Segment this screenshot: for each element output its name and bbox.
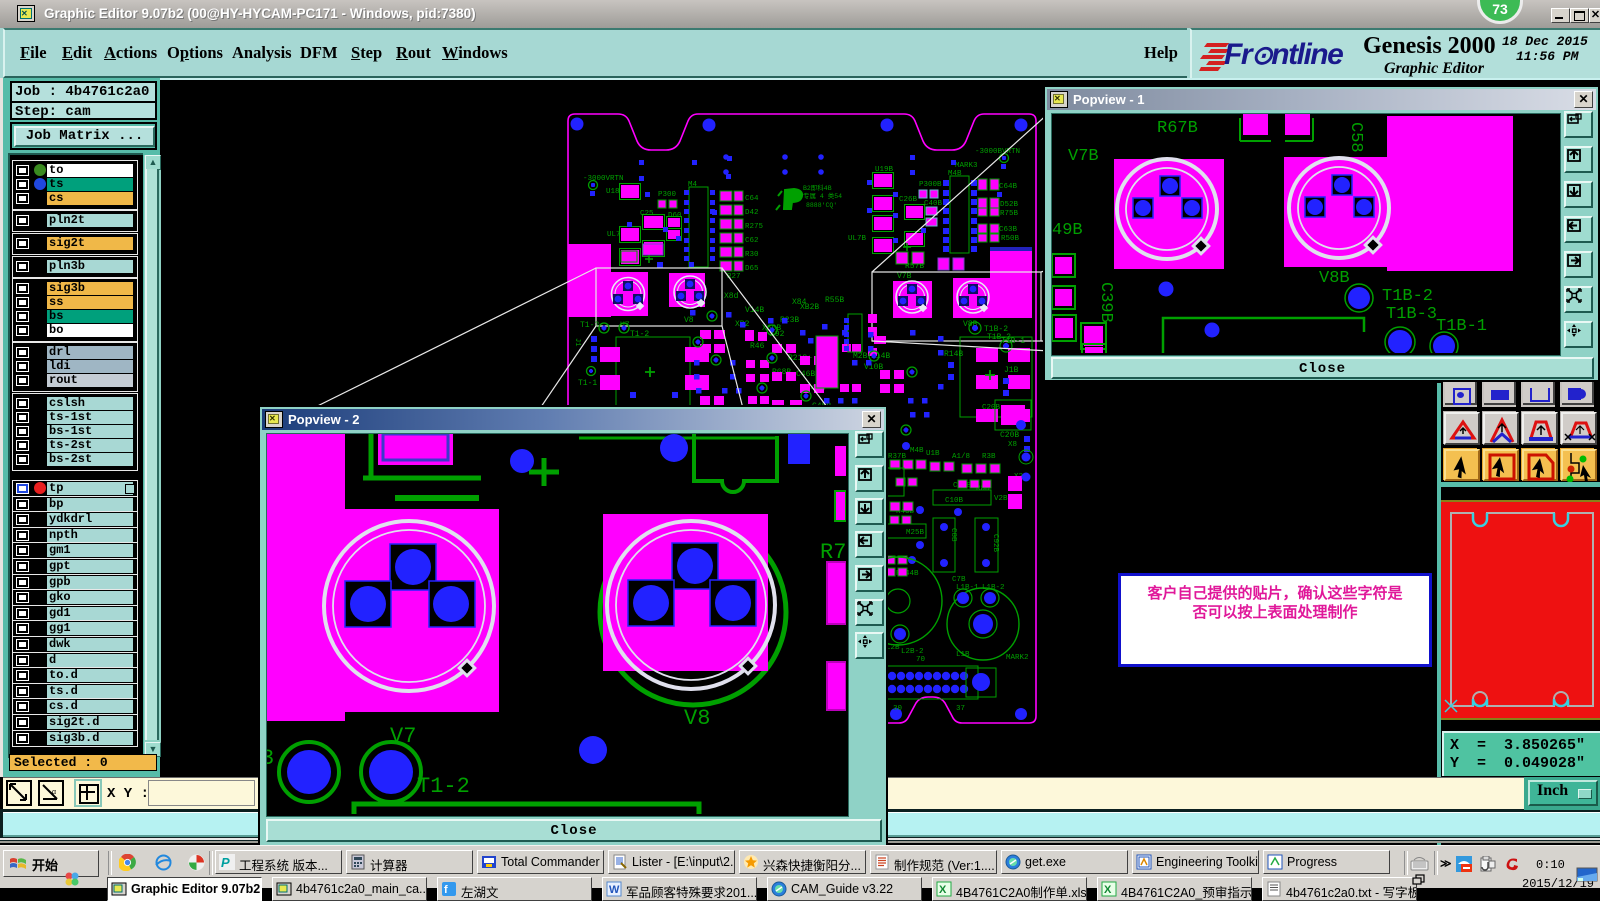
svg-text:UL7B: UL7B: [848, 235, 867, 243]
svg-text:R7: R7: [820, 540, 846, 565]
svg-text:C20B: C20B: [1000, 431, 1019, 440]
svg-text:P300: P300: [658, 191, 677, 199]
svg-text:T1B-1: T1B-1: [1436, 317, 1487, 336]
svg-text:T1B-2: T1B-2: [1382, 287, 1433, 306]
svg-text:C64: C64: [745, 195, 759, 203]
svg-text:R3B: R3B: [982, 453, 996, 461]
svg-text:R55B: R55B: [825, 296, 844, 305]
svg-text:T1-1: T1-1: [578, 379, 597, 388]
svg-text:A1/8: A1/8: [952, 453, 970, 461]
svg-text:T1-2: T1-2: [630, 330, 649, 339]
svg-text:X: X: [1104, 884, 1112, 896]
svg-text:U1B: U1B: [926, 450, 940, 458]
svg-text:37: 37: [956, 705, 965, 713]
svg-text:W: W: [609, 884, 620, 896]
svg-text:R46: R46: [750, 342, 765, 351]
svg-text:30: 30: [893, 705, 903, 713]
svg-text:C62: C62: [745, 237, 759, 245]
svg-text:T1B-3: T1B-3: [1386, 305, 1437, 324]
svg-text:C26B: C26B: [899, 196, 918, 204]
svg-text:D52B: D52B: [1000, 201, 1019, 209]
svg-text:C39B: C39B: [1096, 282, 1115, 323]
svg-text:T1-2: T1-2: [417, 774, 470, 799]
svg-text:C64B: C64B: [999, 183, 1018, 191]
svg-text:V8: V8: [684, 706, 710, 731]
svg-text:R75B: R75B: [1000, 210, 1019, 218]
svg-text:C8B: C8B: [949, 528, 957, 542]
svg-text:D42: D42: [745, 209, 759, 217]
svg-text:f: f: [444, 884, 448, 896]
svg-text:C46B: C46B: [796, 370, 815, 379]
svg-text:α: α: [52, 789, 56, 796]
svg-text:R67B: R67B: [1157, 119, 1198, 138]
svg-text:X: X: [939, 884, 947, 896]
svg-text:3: 3: [267, 746, 274, 771]
svg-text:L1B: L1B: [956, 651, 970, 659]
svg-text:M4B: M4B: [910, 447, 924, 455]
svg-text:V8: V8: [684, 316, 694, 325]
svg-text:C20B: C20B: [982, 404, 1001, 412]
svg-text:C7B: C7B: [952, 576, 966, 584]
svg-text:V2B: V2B: [994, 495, 1008, 503]
svg-text:XB2B: XB2B: [800, 303, 819, 312]
svg-text:C63B: C63B: [999, 226, 1018, 234]
svg-text:B2即科4B: B2即科4B: [803, 183, 832, 192]
svg-text:49B: 49B: [1052, 221, 1083, 240]
svg-text:UL7: UL7: [607, 231, 621, 239]
svg-text:U18: U18: [606, 188, 620, 196]
svg-text:R50B: R50B: [1001, 235, 1020, 243]
svg-text:R14B: R14B: [944, 350, 963, 359]
svg-text:M2B: M2B: [853, 352, 868, 361]
svg-text:V7B: V7B: [1068, 147, 1099, 166]
svg-text:T1-?: T1-?: [580, 321, 599, 330]
svg-text:MARK3: MARK3: [955, 162, 978, 170]
svg-text:70: 70: [916, 656, 926, 664]
svg-text:R275: R275: [745, 223, 764, 231]
svg-text:8888'CQ': 8888'CQ': [806, 202, 837, 209]
svg-text:X8: X8: [1008, 441, 1017, 449]
svg-text:-3000BVRTN: -3000BVRTN: [975, 148, 1020, 156]
svg-text:L2B-2: L2B-2: [901, 648, 924, 656]
svg-text:X8d: X8d: [724, 292, 739, 301]
svg-text:R30: R30: [745, 251, 759, 259]
svg-text:C10B: C10B: [945, 497, 964, 505]
svg-text:P: P: [221, 855, 230, 870]
svg-text:J1: J1: [573, 338, 581, 346]
svg-text:V8B: V8B: [1319, 269, 1350, 288]
svg-text:MARK2: MARK2: [1006, 654, 1029, 662]
svg-text:P300B: P300B: [919, 181, 942, 189]
svg-text:M25B: M25B: [906, 529, 925, 537]
svg-text:专属 4 类54: 专属 4 类54: [803, 191, 842, 200]
svg-text:D65: D65: [745, 265, 759, 273]
svg-text:C58: C58: [1346, 122, 1365, 153]
svg-text:J1B: J1B: [1004, 366, 1019, 375]
svg-text:V7B: V7B: [897, 272, 912, 281]
